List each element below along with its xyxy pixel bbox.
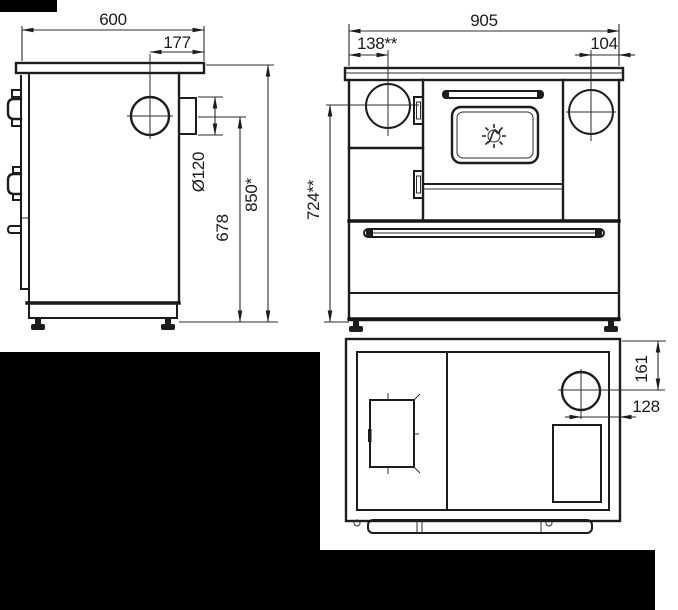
top-right-panel: [553, 425, 601, 502]
redaction-block-top-left: [0, 0, 57, 12]
dimension-label-overall-height: 850*: [242, 177, 261, 211]
dimension-hotplate-offset: 138**: [349, 34, 398, 55]
side-top-plate: [16, 63, 204, 73]
dimension-label-front-width: 905: [470, 11, 497, 30]
dimension-label-flue-center-height: 678: [213, 214, 232, 241]
flame-symbol-icon: [482, 124, 506, 148]
front-door-hinge-top: [414, 97, 423, 124]
side-foot-left: [31, 318, 45, 330]
top-view-outer: [346, 339, 620, 521]
dimension-worktop-height: 724**: [304, 105, 330, 322]
top-view: 161 128: [346, 339, 666, 533]
redaction-block-bottom-band: [0, 550, 655, 610]
side-door-handle-top: [8, 90, 21, 126]
front-towel-rail: [364, 229, 604, 237]
technical-drawing-page: 600 177 Ø120 678 850*: [0, 0, 678, 610]
dimension-top-flue-offset-back: 161: [622, 341, 666, 390]
dimension-label-right-hotplate-edge-offset: 104: [590, 34, 617, 53]
dimension-label-top-flue-offset-back: 161: [632, 355, 651, 382]
dimension-top-flue-offset-side: 128: [565, 397, 660, 417]
front-oven-door: [423, 91, 563, 189]
dimension-label-flue-offset: 177: [163, 33, 190, 52]
dimension-label-hotplate-offset: 138**: [357, 34, 398, 53]
front-hotplate-left: [326, 50, 419, 136]
side-view: 600 177 Ø120 678 850*: [8, 10, 278, 330]
oven-window: [452, 107, 538, 163]
front-view: 905 138** 104 724**: [304, 11, 635, 332]
side-door-handle-middle: [8, 167, 21, 200]
front-hotplate-right: [566, 50, 616, 141]
dimension-flue-offset: 177: [150, 33, 204, 52]
dimension-label-worktop-height: 724**: [304, 179, 323, 220]
stove-dimension-drawing: 600 177 Ø120 678 850*: [0, 0, 678, 610]
dimension-flue-center-height: 678: [198, 117, 246, 322]
dimension-right-hotplate-edge-offset: 104: [575, 34, 635, 55]
front-foot-left: [349, 320, 363, 332]
oven-door-handle: [443, 91, 543, 98]
dimension-label-top-flue-offset-side: 128: [632, 397, 659, 416]
front-door-hinge-bottom: [414, 171, 423, 198]
side-ash-door-latch: [8, 226, 21, 233]
front-foot-right: [604, 320, 618, 332]
side-foot-right: [161, 318, 175, 330]
dimension-label-flue-diameter: Ø120: [189, 152, 208, 192]
side-plinth: [29, 303, 177, 318]
dimension-label-side-width: 600: [99, 10, 126, 29]
front-top-plate: [345, 68, 623, 80]
dimension-flue-diameter: Ø120: [189, 97, 223, 192]
top-firebox-lid: [368, 393, 420, 474]
side-flue-stub: [179, 98, 196, 134]
